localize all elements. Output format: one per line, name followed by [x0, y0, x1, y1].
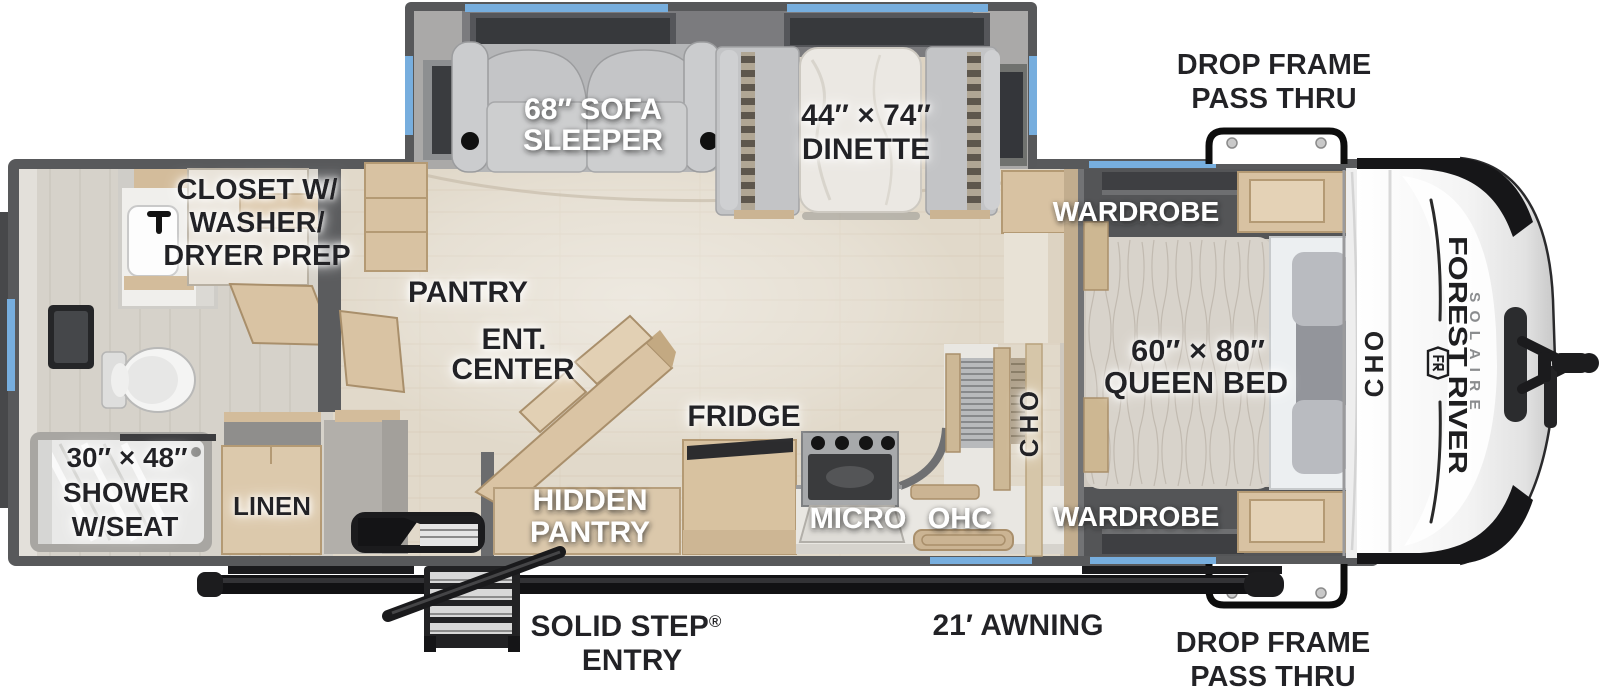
svg-text:WARDROBE: WARDROBE	[1053, 501, 1219, 532]
svg-text:MICRO: MICRO	[810, 503, 907, 535]
svg-text:SOLID STEP®: SOLID STEP®	[531, 610, 722, 643]
svg-text:CLOSET W/: CLOSET W/	[176, 174, 337, 206]
svg-text:C: C	[1359, 378, 1389, 397]
svg-text:44″ × 74″: 44″ × 74″	[801, 99, 931, 132]
svg-text:WASHER/: WASHER/	[189, 207, 324, 239]
svg-text:60″ × 80″: 60″ × 80″	[1131, 333, 1265, 368]
svg-text:21′ AWNING: 21′ AWNING	[932, 609, 1103, 642]
svg-text:68″ SOFA: 68″ SOFA	[524, 93, 662, 126]
svg-text:C: C	[1014, 438, 1044, 457]
svg-text:H: H	[1014, 415, 1044, 434]
svg-text:SOLAIRE: SOLAIRE	[1466, 292, 1483, 418]
svg-text:FRIDGE: FRIDGE	[687, 400, 800, 433]
svg-text:OHC: OHC	[928, 503, 993, 535]
svg-text:PANTRY: PANTRY	[530, 516, 650, 549]
svg-text:DRYER PREP: DRYER PREP	[163, 240, 350, 272]
svg-text:PASS THRU: PASS THRU	[1191, 83, 1356, 115]
svg-text:H: H	[1359, 355, 1389, 374]
svg-text:30″ × 48″: 30″ × 48″	[66, 442, 187, 473]
svg-text:QUEEN BED: QUEEN BED	[1104, 365, 1288, 400]
svg-text:DROP FRAME: DROP FRAME	[1177, 49, 1371, 81]
svg-text:CENTER: CENTER	[451, 353, 575, 386]
svg-text:ENT.: ENT.	[481, 323, 546, 356]
svg-text:WARDROBE: WARDROBE	[1053, 196, 1219, 227]
svg-text:SHOWER: SHOWER	[63, 477, 189, 508]
svg-text:PANTRY: PANTRY	[408, 276, 528, 309]
svg-text:HIDDEN: HIDDEN	[532, 484, 647, 517]
svg-text:W/SEAT: W/SEAT	[72, 511, 179, 542]
svg-text:SLEEPER: SLEEPER	[523, 124, 663, 157]
svg-text:DROP FRAME: DROP FRAME	[1176, 627, 1370, 659]
svg-text:DINETTE: DINETTE	[802, 133, 930, 166]
svg-text:PASS THRU: PASS THRU	[1190, 661, 1355, 693]
svg-text:ENTRY: ENTRY	[582, 644, 683, 677]
svg-text:O: O	[1014, 391, 1044, 411]
svg-text:LINEN: LINEN	[233, 491, 311, 521]
svg-text:O: O	[1359, 331, 1389, 351]
